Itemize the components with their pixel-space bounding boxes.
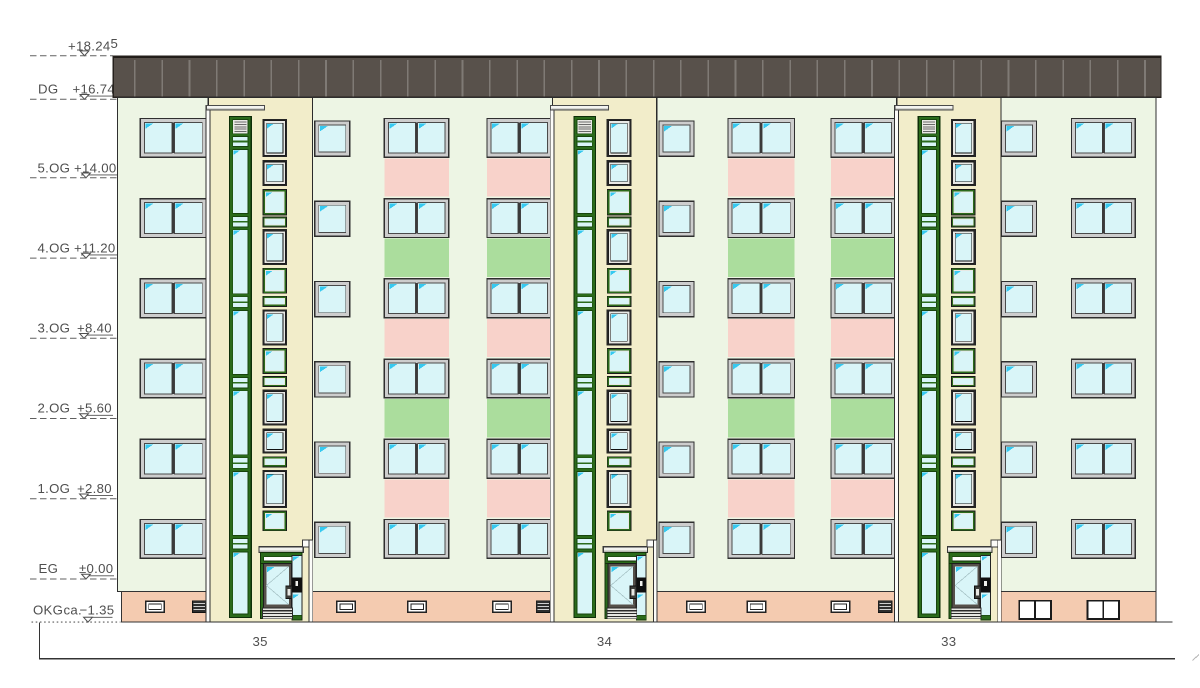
svg-text:5: 5 bbox=[111, 36, 119, 51]
svg-text:OKG: OKG bbox=[33, 603, 63, 618]
svg-text:EG: EG bbox=[39, 561, 59, 576]
svg-text:4.OG: 4.OG bbox=[38, 240, 71, 255]
svg-text:DG: DG bbox=[38, 82, 58, 97]
svg-text:+16.74: +16.74 bbox=[73, 82, 116, 97]
svg-text:+18.24: +18.24 bbox=[68, 39, 111, 54]
svg-text:33: 33 bbox=[941, 634, 956, 649]
svg-text:+14.00: +14.00 bbox=[74, 160, 117, 175]
svg-text:+11.20: +11.20 bbox=[74, 240, 116, 255]
svg-text:34: 34 bbox=[597, 634, 612, 649]
svg-text:5.OG: 5.OG bbox=[38, 160, 71, 175]
svg-text:1.OG: 1.OG bbox=[38, 481, 71, 496]
svg-text:35: 35 bbox=[253, 634, 268, 649]
svg-text:−1.35: −1.35 bbox=[80, 603, 115, 618]
svg-text:3.OG: 3.OG bbox=[38, 321, 71, 336]
svg-text:2.OG: 2.OG bbox=[38, 401, 71, 416]
